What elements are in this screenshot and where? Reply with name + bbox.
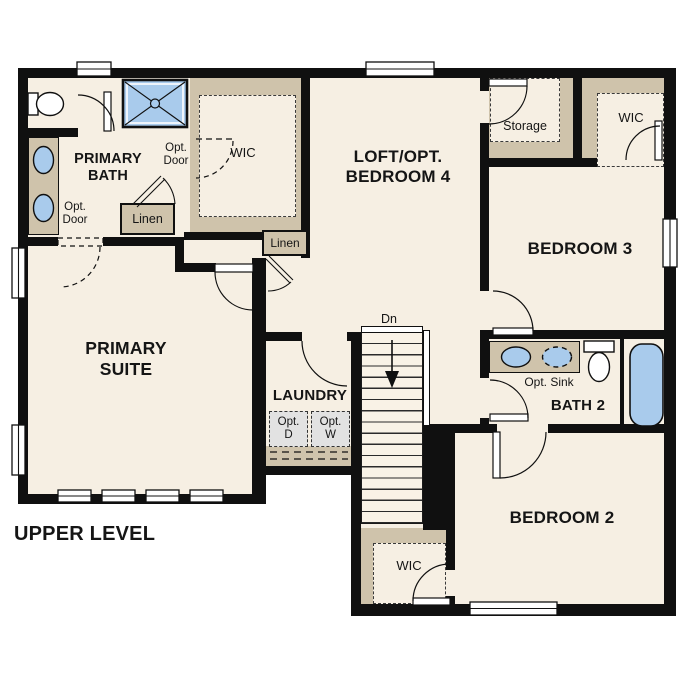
wic-opt-door-text: Opt. Door [156,142,196,168]
hall-linen-label: Linen [270,236,299,250]
hall-linen-closet: Linen [262,230,308,256]
floor-plan: Linen Linen Opt. D Opt. W [0,0,687,687]
bedroom3-wic-text: WIC [618,110,643,125]
laundry-text: LAUNDRY [273,387,347,405]
wall-stair-turn [423,424,455,530]
loft-text: LOFT/OPT. BEDROOM 4 [328,147,468,187]
wall-staircol-left [351,332,361,604]
stair-right-railing [423,330,430,426]
primary-suite-title: PRIMARY SUITE [70,336,182,382]
wall-suite-bottom [18,494,266,504]
plan-title: UPPER LEVEL [14,522,224,548]
wall-b3-left-2 [480,123,489,291]
plan-title-text: UPPER LEVEL [14,523,155,547]
bath2-title: BATH 2 [518,397,638,415]
bath2-text: BATH 2 [551,397,605,415]
primary-bath-text: PRIMARY BATH [62,151,154,185]
bath-linen-label: Linen [132,212,163,226]
bedroom2-wic-label: WIC [364,558,454,573]
wall-bath2-bottom-b [548,424,676,433]
stairs-down-label: Dn [369,311,409,327]
stair-top-railing [361,326,423,333]
wall-right [664,68,676,616]
wall-tub-divider [620,339,624,432]
wall-laundry-top-a [257,332,302,341]
wall-bath2-top [480,330,676,339]
primary-wic-text: WIC [230,145,255,160]
wic-opt-door-label: Opt. Door [156,140,196,170]
wall-storage-wic-divider [573,77,582,167]
bedroom3-text: BEDROOM 3 [528,239,633,259]
wall-laundry-top-b [347,332,361,341]
laundry-counter-strip [266,446,352,466]
wall-b2wic-right-b [446,596,455,604]
wall-suite-top [175,263,216,272]
stairs-down-text: Dn [381,312,397,327]
bedroom2-wic-text: WIC [396,558,421,573]
staircase [361,332,423,524]
primary-bath-title: PRIMARY BATH [62,150,154,186]
bedroom3-wic-label: WIC [586,110,676,125]
bedroom3-title: BEDROOM 3 [505,239,655,259]
optional-dryer-label: Opt. D [276,416,302,442]
bedroom2-wic-floor [373,543,446,604]
laundry-title: LAUNDRY [260,388,360,404]
wall-bath-bottom-b [103,237,175,246]
wall-left [18,68,28,504]
bath-opt-door-text: Opt. Door [55,201,95,227]
bath-opt-door-label: Opt. Door [55,199,95,229]
bedroom2-title: BEDROOM 2 [487,508,637,528]
loft-title: LOFT/OPT. BEDROOM 4 [328,144,468,190]
wall-loft-left [301,77,310,232]
floor-suite-lower [28,467,266,495]
wall-bottom [351,604,676,616]
wall-laundry-bottom [257,466,361,475]
bedroom2-text: BEDROOM 2 [510,508,615,528]
storage-text: Storage [503,119,547,134]
bath-linen-closet: Linen [120,203,175,235]
optional-washer: Opt. W [311,411,350,447]
wall-toilet-nook [28,128,78,137]
primary-suite-text: PRIMARY SUITE [70,338,182,379]
optional-dryer: Opt. D [269,411,308,447]
storage-label: Storage [480,119,570,134]
wall-bath-bottom-a [28,237,58,246]
wall-b3-left-1 [480,77,489,91]
bath2-counter [489,341,580,373]
opt-sink-text: Opt. Sink [524,375,573,389]
optional-washer-label: Opt. W [318,416,344,442]
opt-sink-label: Opt. Sink [509,375,589,389]
bedroom3-wic-floor [597,93,664,167]
primary-wic-label: WIC [198,145,288,160]
